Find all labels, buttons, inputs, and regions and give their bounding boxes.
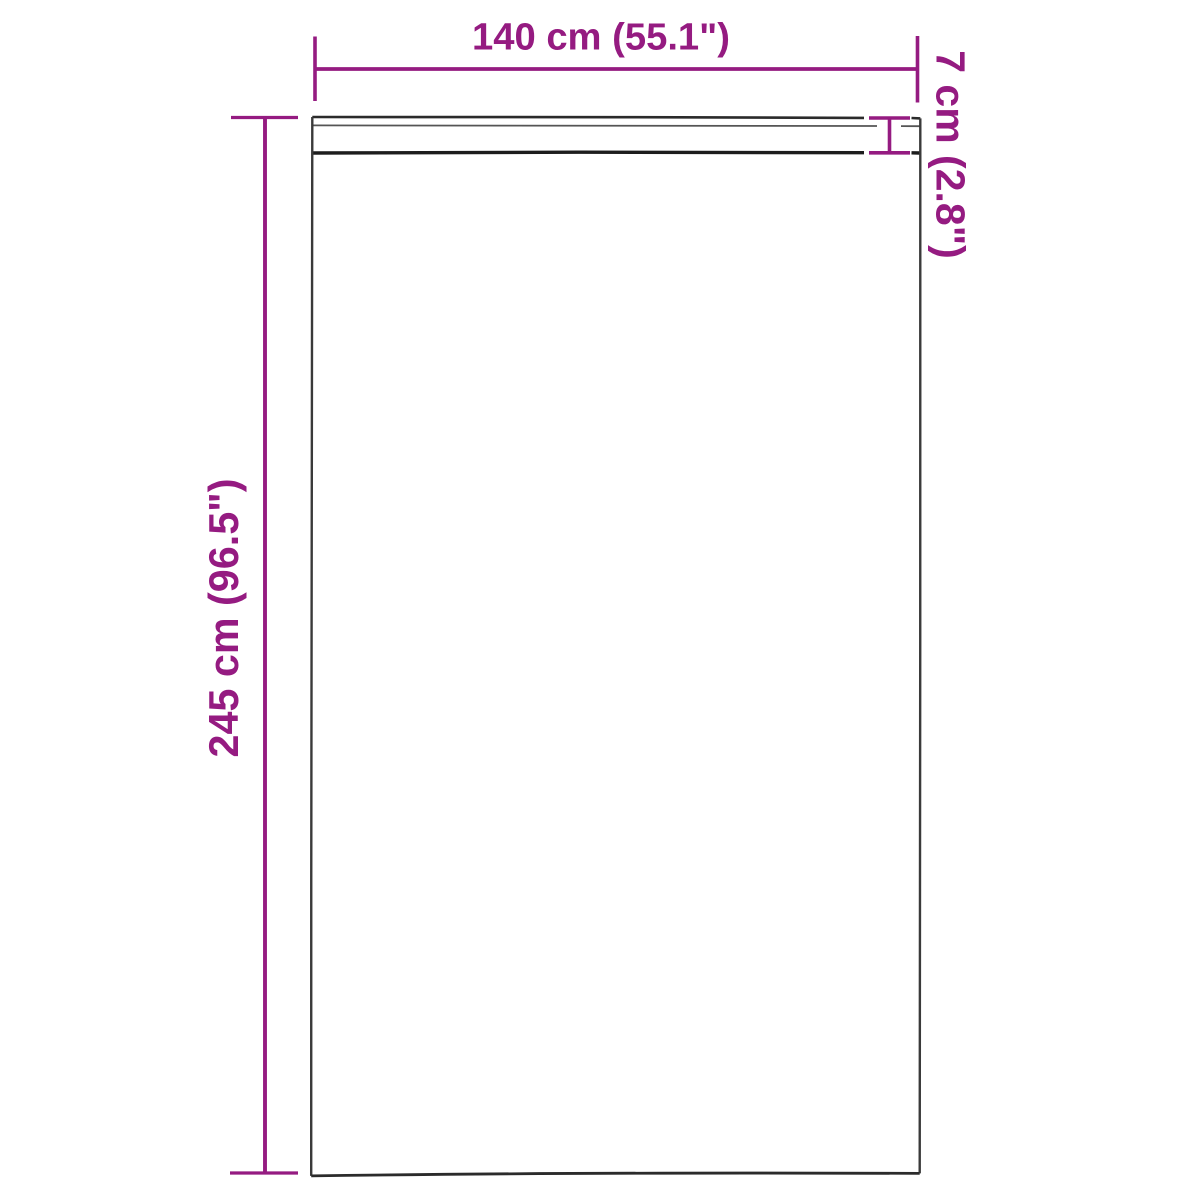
svg-text:245 cm (96.5"): 245 cm (96.5") [201, 479, 247, 758]
svg-text:140 cm (55.1"): 140 cm (55.1") [472, 16, 730, 59]
svg-text:7 cm (2.8"): 7 cm (2.8") [928, 50, 974, 259]
